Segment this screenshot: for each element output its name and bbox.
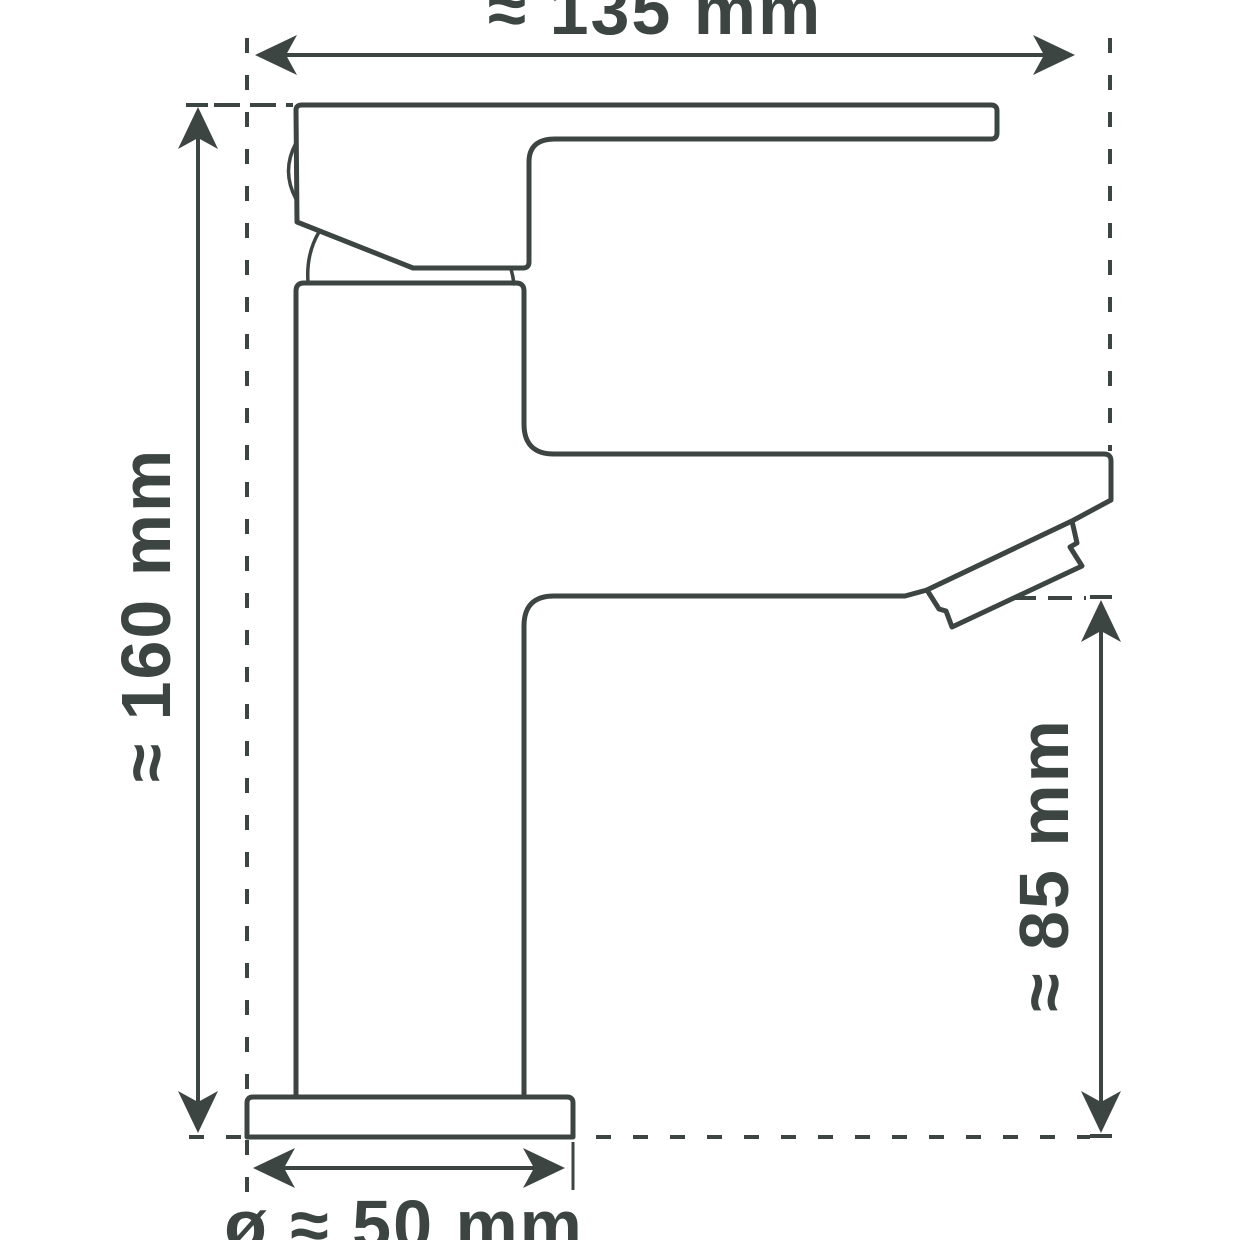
- handle-skirt-curve: [308, 232, 319, 282]
- faucet-dimension-drawing: ≈ 135 mm ≈ 160 mm ≈ 85 mm ø ≈ 50 mm: [0, 0, 1240, 1240]
- spout-height-label: ≈ 85 mm: [1005, 718, 1083, 1012]
- base-plinth: [247, 1097, 573, 1137]
- base-diameter-label: ø ≈ 50 mm: [224, 1186, 584, 1240]
- faucet-body-and-spout: [296, 283, 1111, 1098]
- dimension-labels: ≈ 135 mm ≈ 160 mm ≈ 85 mm ø ≈ 50 mm: [107, 0, 1083, 1240]
- overall-width-label: ≈ 135 mm: [488, 0, 823, 49]
- faucet-outline: [247, 105, 1111, 1137]
- drawing-canvas: ≈ 135 mm ≈ 160 mm ≈ 85 mm ø ≈ 50 mm: [0, 0, 1240, 1240]
- overall-height-label: ≈ 160 mm: [107, 448, 185, 783]
- lever-handle: [296, 105, 997, 268]
